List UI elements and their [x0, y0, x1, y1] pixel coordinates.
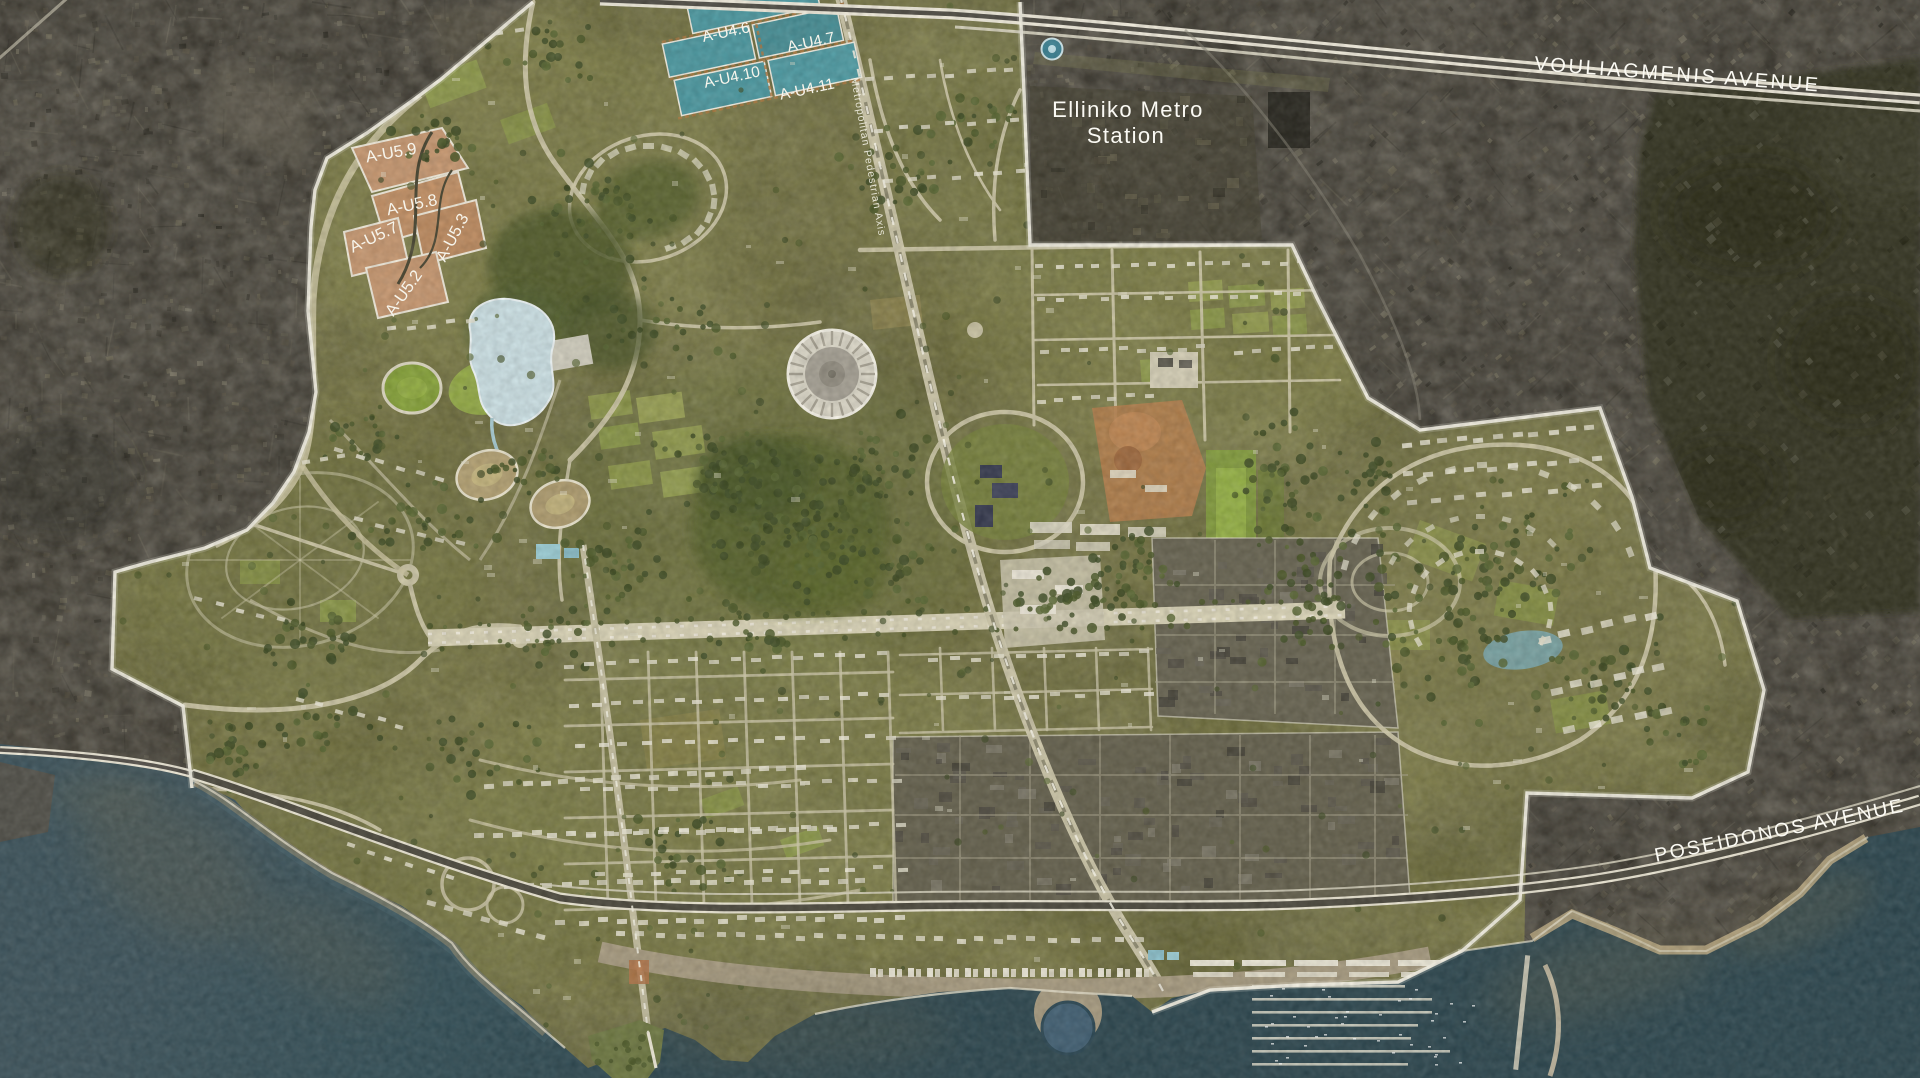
svg-text:Station: Station [1087, 123, 1165, 148]
svg-text:Elliniko Metro: Elliniko Metro [1052, 97, 1204, 122]
